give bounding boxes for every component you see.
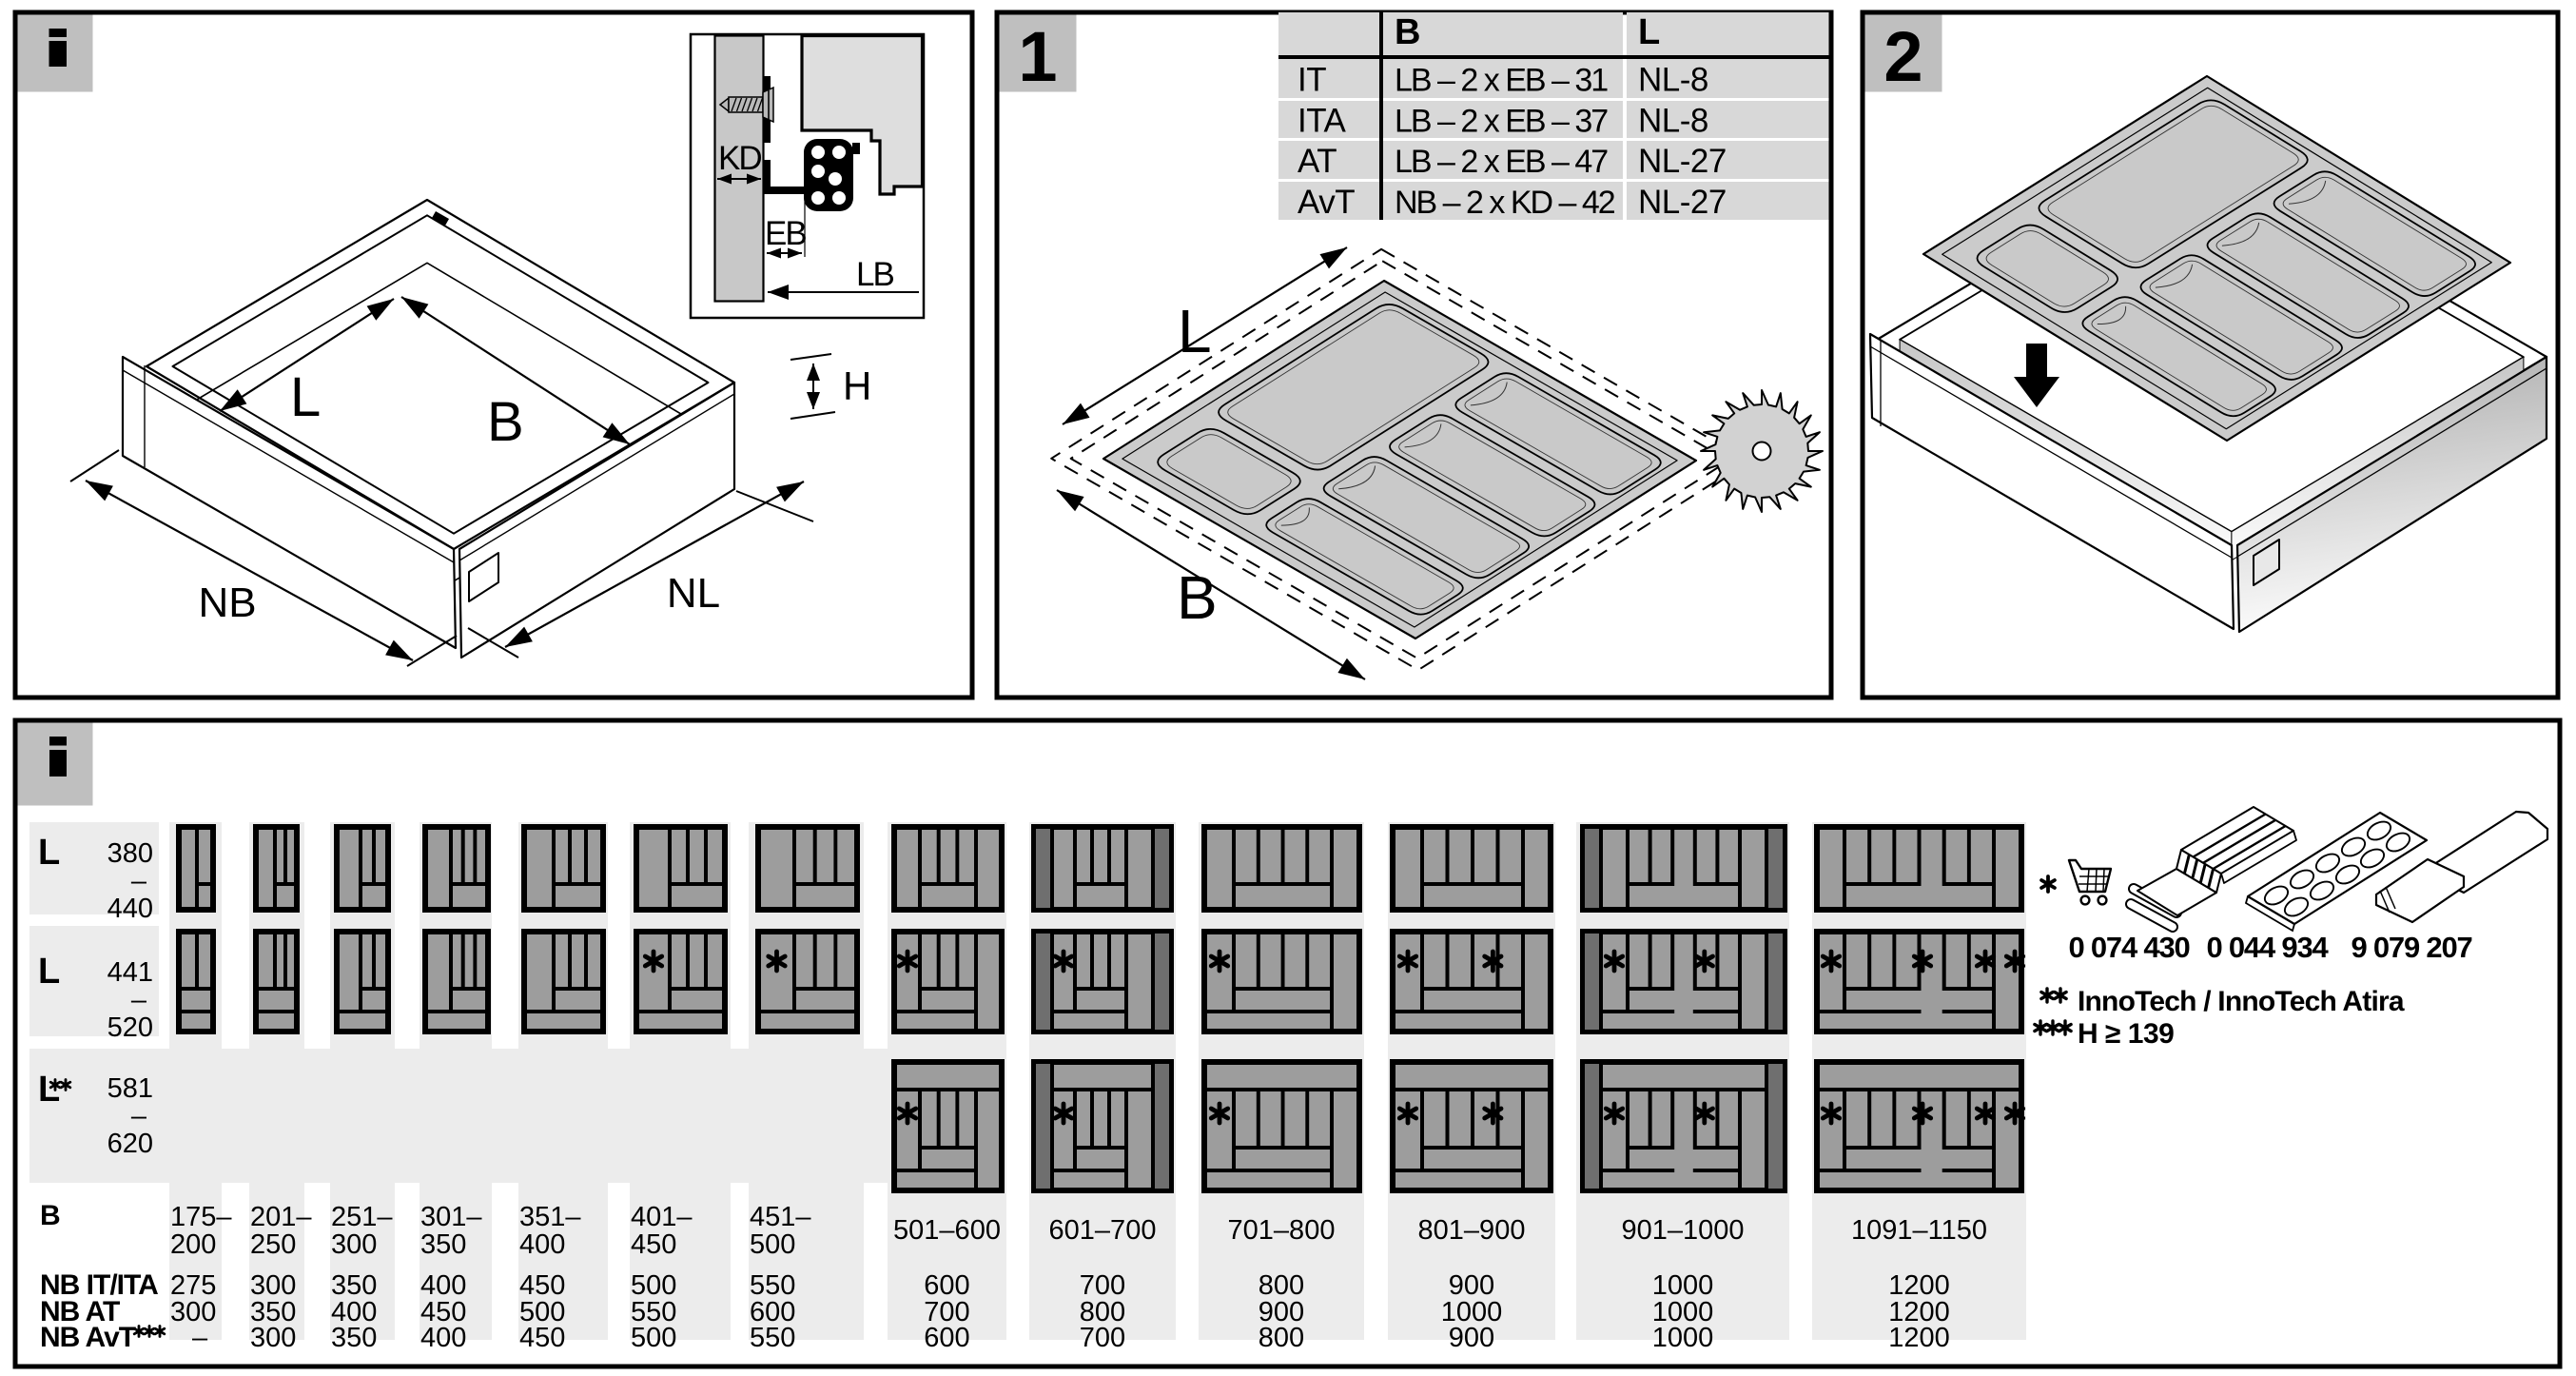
- svg-text:441: 441: [107, 957, 153, 988]
- svg-text:NL: NL: [667, 570, 720, 617]
- svg-text:520: 520: [107, 1012, 153, 1043]
- svg-text:401–: 401–: [631, 1202, 693, 1232]
- svg-text:700: 700: [1080, 1323, 1125, 1353]
- svg-text:B: B: [40, 1200, 61, 1231]
- svg-text:200: 200: [170, 1229, 216, 1260]
- svg-text:LB – 2 x EB – 37: LB – 2 x EB – 37: [1395, 104, 1608, 140]
- svg-text:300: 300: [250, 1323, 296, 1353]
- svg-text:AT: AT: [1298, 143, 1337, 180]
- svg-text:0 044 934: 0 044 934: [2206, 931, 2329, 964]
- svg-text:L: L: [290, 366, 321, 428]
- svg-text:300: 300: [331, 1229, 377, 1260]
- svg-text:450: 450: [631, 1229, 676, 1260]
- svg-text:LB: LB: [856, 256, 893, 293]
- svg-text:350: 350: [420, 1229, 466, 1260]
- svg-text:B: B: [1177, 563, 1218, 632]
- svg-text:L: L: [38, 1070, 60, 1110]
- svg-text:351–: 351–: [519, 1202, 581, 1232]
- svg-text:380: 380: [107, 838, 153, 869]
- svg-text:NB – 2 x KD – 42: NB – 2 x KD – 42: [1395, 185, 1615, 221]
- svg-text:NL-27: NL-27: [1638, 143, 1727, 180]
- svg-text:201–: 201–: [250, 1202, 312, 1232]
- svg-text:350: 350: [331, 1323, 377, 1353]
- svg-text:NL-8: NL-8: [1638, 62, 1708, 99]
- svg-text:1091–1150: 1091–1150: [1851, 1215, 1987, 1246]
- svg-text:–: –: [192, 1323, 208, 1353]
- svg-text:620: 620: [107, 1129, 153, 1159]
- svg-text:400: 400: [420, 1323, 466, 1353]
- svg-text:501–600: 501–600: [893, 1215, 1001, 1246]
- svg-text:ITA: ITA: [1298, 103, 1347, 140]
- svg-text:500: 500: [631, 1323, 676, 1353]
- svg-text:1: 1: [1018, 17, 1057, 96]
- svg-text:B: B: [487, 391, 524, 453]
- svg-text:LB – 2 x EB – 47: LB – 2 x EB – 47: [1395, 144, 1608, 180]
- svg-text:175–: 175–: [170, 1202, 232, 1232]
- svg-text:581: 581: [107, 1073, 153, 1104]
- svg-text:NB AvT: NB AvT: [40, 1322, 136, 1353]
- svg-text:601–700: 601–700: [1049, 1215, 1157, 1246]
- svg-text:L: L: [38, 952, 60, 992]
- svg-text:251–: 251–: [331, 1202, 393, 1232]
- svg-text:2: 2: [1883, 17, 1922, 96]
- svg-text:451–: 451–: [750, 1202, 811, 1232]
- svg-text:L: L: [1178, 297, 1212, 365]
- svg-text:NL-27: NL-27: [1638, 184, 1727, 221]
- svg-text:B: B: [1395, 12, 1420, 52]
- svg-text:301–: 301–: [420, 1202, 482, 1232]
- svg-text:500: 500: [750, 1229, 795, 1260]
- svg-text:H ≥ 139: H ≥ 139: [2078, 1018, 2174, 1050]
- svg-text:InnoTech / InnoTech Atira: InnoTech / InnoTech Atira: [2078, 986, 2405, 1017]
- svg-text:H: H: [843, 364, 871, 408]
- svg-text:901–1000: 901–1000: [1621, 1215, 1744, 1246]
- svg-text:450: 450: [519, 1323, 565, 1353]
- svg-text:550: 550: [750, 1323, 795, 1353]
- svg-text:L: L: [38, 833, 60, 873]
- svg-text:L: L: [1638, 12, 1660, 52]
- svg-text:400: 400: [519, 1229, 565, 1260]
- svg-text:–: –: [131, 1101, 147, 1131]
- svg-text:LB – 2 x EB – 31: LB – 2 x EB – 31: [1395, 63, 1608, 99]
- svg-text:0 074 430: 0 074 430: [2068, 931, 2189, 964]
- svg-text:KD: KD: [718, 140, 761, 177]
- svg-text:NB: NB: [198, 580, 256, 626]
- svg-text:1200: 1200: [1888, 1323, 1950, 1353]
- svg-text:9 079 207: 9 079 207: [2351, 931, 2471, 964]
- svg-text:701–800: 701–800: [1228, 1215, 1336, 1246]
- svg-text:250: 250: [250, 1229, 296, 1260]
- svg-text:900: 900: [1449, 1323, 1494, 1353]
- svg-text:1000: 1000: [1652, 1323, 1714, 1353]
- svg-text:EB: EB: [765, 215, 806, 252]
- svg-text:–: –: [131, 866, 147, 896]
- svg-text:800: 800: [1259, 1323, 1304, 1353]
- svg-text:801–900: 801–900: [1418, 1215, 1526, 1246]
- svg-text:–: –: [131, 985, 147, 1015]
- svg-text:AvT: AvT: [1298, 184, 1355, 221]
- svg-text:440: 440: [107, 894, 153, 924]
- svg-text:IT: IT: [1298, 62, 1326, 99]
- svg-text:NL-8: NL-8: [1638, 103, 1708, 140]
- svg-text:600: 600: [924, 1323, 969, 1353]
